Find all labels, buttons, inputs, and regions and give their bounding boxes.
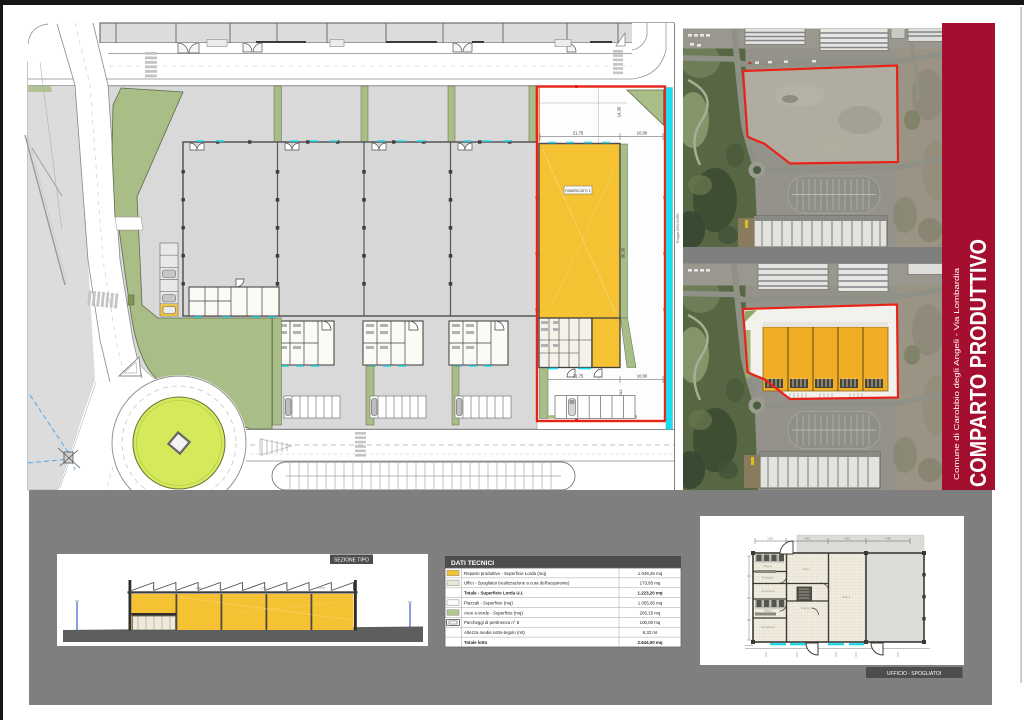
svg-text:Totale lotto: Totale lotto [464,640,488,645]
svg-text:36,30: 36,30 [621,247,626,258]
svg-text:4,00: 4,00 [844,537,850,541]
svg-text:14,30: 14,30 [617,106,622,117]
svg-text:DATI TECNICI: DATI TECNICI [451,560,494,567]
svg-text:4,40: 4,40 [804,537,810,541]
svg-text:Antibagno: Antibagno [762,576,775,580]
svg-text:Disimp.: Disimp. [801,606,811,610]
svg-text:Bagno: Bagno [764,609,773,613]
svg-text:Roggia BOLGARE: Roggia BOLGARE [676,213,680,243]
svg-text:21,75: 21,75 [573,374,584,379]
svg-text:265,15 mq: 265,15 mq [640,610,661,615]
svg-text:3,50: 3,50 [767,537,773,541]
svg-text:1.223,20 mq: 1.223,20 mq [638,591,663,596]
svg-text:FABBRICATO 1: FABBRICATO 1 [565,189,590,193]
svg-text:1.049,25 mq: 1.049,25 mq [638,571,663,576]
svg-text:Ufficio: Ufficio [842,595,850,599]
svg-text:2.644,00 mq: 2.644,00 mq [638,640,663,645]
svg-text:100,00 mq: 100,00 mq [640,620,661,625]
svg-text:4,60: 4,60 [885,537,891,541]
svg-text:173,95 mq: 173,95 mq [640,581,661,586]
svg-text:Ufficio: Ufficio [802,567,810,571]
svg-text:21,75: 21,75 [573,131,584,136]
svg-text:10,00: 10,00 [637,374,648,379]
svg-text:Aree a verde - Superficie (mq): Aree a verde - Superficie (mq) [464,610,523,615]
svg-text:Parcheggi di pertinenza n° 8: Parcheggi di pertinenza n° 8 [464,620,520,625]
svg-text:Reparto produttivo - Superfici: Reparto produttivo - Superficie Lorda (m… [464,571,547,576]
svg-text:Comune di Carobbio degli Angel: Comune di Carobbio degli Angeli - Via Lo… [952,267,961,480]
svg-text:+7,50: +7,50 [318,586,325,590]
svg-text:Piazzali - Superficie (mq): Piazzali - Superficie (mq) [464,600,513,605]
svg-text:COMPARTO PRODUTTIVO: COMPARTO PRODUTTIVO [965,239,991,487]
svg-text:SEZIONE TIPO: SEZIONE TIPO [334,558,369,564]
svg-text:+7,50: +7,50 [195,586,202,590]
svg-text:UFFICIO - SPOGLIATOI: UFFICIO - SPOGLIATOI [887,671,941,677]
svg-text:Bagno: Bagno [764,564,773,568]
svg-text:+7,50: +7,50 [260,586,267,590]
svg-text:Altezza media sotto-tegolo (mt: Altezza media sotto-tegolo (mt) [464,630,525,635]
svg-text:Totale - Superficie Lorda U.I.: Totale - Superficie Lorda U.I. [464,591,523,596]
svg-text:9,32 mt: 9,32 mt [643,630,658,635]
svg-text:10,00: 10,00 [637,131,648,136]
svg-text:Spogliatoio: Spogliatoio [761,625,775,629]
svg-text:Uffici - Spogliatoi (realizza: Uffici - Spogliatoi (realizzazione a cur… [464,581,570,586]
svg-text:1.055,65 mq: 1.055,65 mq [638,600,663,605]
svg-text:Spogliatoio: Spogliatoio [761,589,775,593]
